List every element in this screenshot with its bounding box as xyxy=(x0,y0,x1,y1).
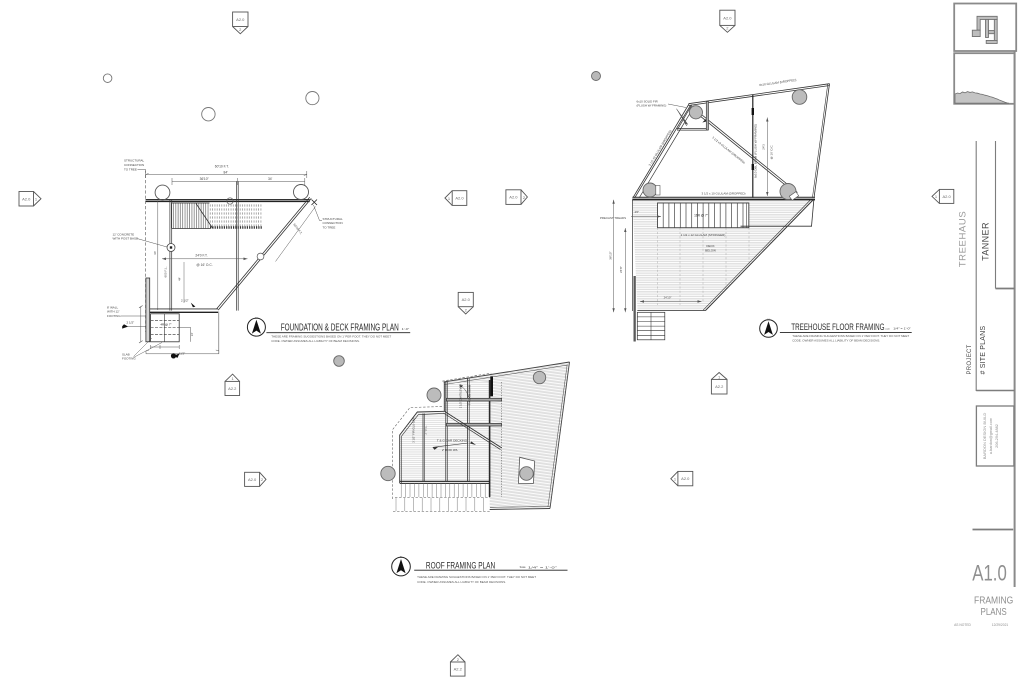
svg-text:A2.0: A2.0 xyxy=(942,194,951,199)
svg-text:44': 44' xyxy=(178,277,182,281)
svg-text:2: 2 xyxy=(726,26,729,31)
svg-text:24'10": 24'10" xyxy=(664,295,672,299)
svg-text:A2.0: A2.0 xyxy=(236,17,245,22)
svg-text:scale: scale xyxy=(885,328,891,330)
svg-text:N: N xyxy=(767,317,769,321)
svg-text:1: 1 xyxy=(935,194,938,199)
svg-text:36'10": 36'10" xyxy=(608,251,612,260)
svg-text:THESE ARE FRAMING SUGGESTIONS: THESE ARE FRAMING SUGGESTIONS BASED ON 1… xyxy=(792,334,909,338)
svg-text:@ 16' O.C.: @ 16' O.C. xyxy=(196,263,212,267)
svg-text:BELOW: BELOW xyxy=(705,249,716,253)
svg-text:CONNECTION: CONNECTION xyxy=(323,221,343,225)
svg-text:1 1/2 CANTILEVER: 1 1/2 CANTILEVER xyxy=(459,384,463,409)
svg-text:A2.0: A2.0 xyxy=(723,15,732,20)
svg-text:DECK: DECK xyxy=(706,244,714,248)
svg-text:@ 16' O.C.: @ 16' O.C. xyxy=(769,144,773,159)
svg-text:TO TREE: TO TREE xyxy=(124,167,137,171)
svg-text:THESE ARE FRAMING SUGGESTIONS: THESE ARE FRAMING SUGGESTIONS BASED ON 1… xyxy=(417,575,536,579)
svg-text:3 1/2 x9 GLULAM (DROPPED): 3 1/2 x9 GLULAM (DROPPED) xyxy=(711,136,746,165)
svg-text:PRECAST TREADS: PRECAST TREADS xyxy=(600,216,626,220)
svg-text:1: 1 xyxy=(448,196,451,201)
svg-text:34': 34' xyxy=(268,177,273,181)
svg-text:THESE ARE FRAMING SUGGESTIONS: THESE ARE FRAMING SUGGESTIONS BASED ON 1… xyxy=(271,335,391,339)
svg-text:60'10 F.T.: 60'10 F.T. xyxy=(215,165,229,169)
svg-text:(FLUSH W/ FRAMING): (FLUSH W/ FRAMING) xyxy=(637,104,667,108)
svg-text:N: N xyxy=(255,316,257,320)
svg-text:TANNER: TANNER xyxy=(981,222,991,261)
svg-text:PLANS: PLANS xyxy=(981,606,1007,618)
svg-text:3 1/2 x 10 GLULAM (DROPPED): 3 1/2 x 10 GLULAM (DROPPED) xyxy=(701,191,745,195)
svg-text:16R @ 7": 16R @ 7" xyxy=(694,213,708,217)
svg-text:60'10 F.T.: 60'10 F.T. xyxy=(292,223,303,236)
svg-text:11'2": 11'2" xyxy=(179,352,185,356)
svg-text:24'8": 24'8" xyxy=(619,266,623,273)
svg-text:T & G CAR DECKING: T & G CAR DECKING xyxy=(437,439,468,443)
svg-text:Scale: Scale xyxy=(520,566,527,569)
svg-text:1: 1 xyxy=(718,374,721,379)
svg-text:STRUCTURAL: STRUCTURAL xyxy=(124,159,144,163)
svg-text:1: 1 xyxy=(674,476,677,481)
svg-text:206-294-4882: 206-294-4882 xyxy=(995,424,999,448)
svg-text:A2.0: A2.0 xyxy=(509,195,518,200)
svg-text:24'3: 24'3 xyxy=(761,144,765,150)
svg-text:CODE. OWNER ASSUMES ALL LIABIL: CODE. OWNER ASSUMES ALL LIABILITY OF BEA… xyxy=(417,580,506,584)
svg-text:TREEHAUS: TREEHAUS xyxy=(958,211,969,268)
svg-text:3 1/2" FIR GLU-LAM: 3 1/2" FIR GLU-LAM xyxy=(412,416,416,442)
svg-text:8' WALL: 8' WALL xyxy=(107,305,118,309)
svg-text:A2.2: A2.2 xyxy=(454,667,463,672)
svg-text:AS NOTED: AS NOTED xyxy=(954,623,971,627)
svg-text:44': 44' xyxy=(153,251,157,255)
svg-text:24'0 F.T.: 24'0 F.T. xyxy=(195,254,207,258)
svg-text:A2.2: A2.2 xyxy=(715,384,724,389)
svg-text:# SITE PLANS: # SITE PLANS xyxy=(980,326,987,375)
svg-text:1'-0": 1'-0" xyxy=(402,327,410,331)
svg-text:7' RIDGE BEAM: 7' RIDGE BEAM xyxy=(468,384,472,405)
svg-text:WITH 12': WITH 12' xyxy=(107,310,120,314)
svg-text:A2.0: A2.0 xyxy=(462,297,471,302)
svg-text:TO TREE: TO TREE xyxy=(323,226,336,230)
svg-text:84': 84' xyxy=(224,171,229,175)
svg-text:14': 14' xyxy=(190,332,194,336)
svg-text:A2.0: A2.0 xyxy=(681,476,690,481)
svg-text:FOUNDATION & DECK FRAMING PLAN: FOUNDATION & DECK FRAMING PLAN xyxy=(281,323,399,334)
svg-text:A2.0: A2.0 xyxy=(22,196,31,201)
svg-text:600 F.L.: 600 F.L. xyxy=(164,266,168,277)
svg-text:2: 2 xyxy=(457,657,460,662)
svg-text:12' CONCRETE: 12' CONCRETE xyxy=(113,232,135,236)
svg-text:N: N xyxy=(400,555,402,559)
svg-text:TREEHOUSE FLOOR FRAMING: TREEHOUSE FLOOR FRAMING xyxy=(791,322,884,332)
svg-text:1: 1 xyxy=(231,376,234,381)
svg-text:CODE. OWNER ASSUMES ALL LIABIL: CODE. OWNER ASSUMES ALL LIABILITY OF BEA… xyxy=(271,339,360,343)
svg-text:2: 2 xyxy=(239,27,242,32)
svg-text:SLAB: SLAB xyxy=(122,352,130,356)
svg-text:A2.2: A2.2 xyxy=(228,386,237,391)
svg-text:WITH POST BASE: WITH POST BASE xyxy=(113,237,138,241)
svg-text:6x10 DBL BEAM (FLUSH W/ FRAMIN: 6x10 DBL BEAM (FLUSH W/ FRAMING) xyxy=(753,124,757,178)
svg-text:12/29/2021: 12/29/2021 xyxy=(992,623,1009,627)
svg-text:CODE. OWNER ASSUMES ALL LIABIL: CODE. OWNER ASSUMES ALL LIABILITY OF BEA… xyxy=(792,338,880,342)
svg-text:PROJECT: PROJECT xyxy=(967,344,973,374)
svg-text:2 1/2": 2 1/2" xyxy=(127,320,135,324)
svg-text:a.bardon@gmail.com: a.bardon@gmail.com xyxy=(989,418,993,454)
svg-text:1/4" = 1'-0": 1/4" = 1'-0" xyxy=(528,566,557,570)
svg-text:2 1/2": 2 1/2" xyxy=(181,299,189,303)
svg-text:1/4" = 1'-0": 1/4" = 1'-0" xyxy=(893,327,911,331)
svg-text:6x10 GLULAM (DROPPED): 6x10 GLULAM (DROPPED) xyxy=(759,78,797,87)
svg-text:4R @ 7": 4R @ 7" xyxy=(160,323,171,327)
svg-text:4'6": 4'6" xyxy=(634,210,639,214)
svg-text:STRUCTURAL: STRUCTURAL xyxy=(323,217,343,221)
svg-text:1: 1 xyxy=(35,197,38,202)
svg-text:2' ROD JPL: 2' ROD JPL xyxy=(442,448,459,452)
svg-text:A2.0: A2.0 xyxy=(455,196,464,201)
svg-text:CONNECTION: CONNECTION xyxy=(124,163,144,167)
svg-text:2: 2 xyxy=(261,477,264,482)
svg-text:A1.0: A1.0 xyxy=(972,561,1007,586)
svg-text:BARDON DESIGN BUILD: BARDON DESIGN BUILD xyxy=(982,413,987,460)
svg-text:FRAMING: FRAMING xyxy=(974,595,1013,607)
svg-text:36'10": 36'10" xyxy=(200,177,210,181)
svg-text:2" O.C.: 2" O.C. xyxy=(424,425,428,434)
svg-text:FOOTING: FOOTING xyxy=(107,314,121,318)
svg-text:2: 2 xyxy=(465,308,468,313)
svg-text:A2.0: A2.0 xyxy=(248,477,257,482)
svg-text:2 1/2 x 12 GLULAM (STRINGER): 2 1/2 x 12 GLULAM (STRINGER) xyxy=(681,233,726,237)
